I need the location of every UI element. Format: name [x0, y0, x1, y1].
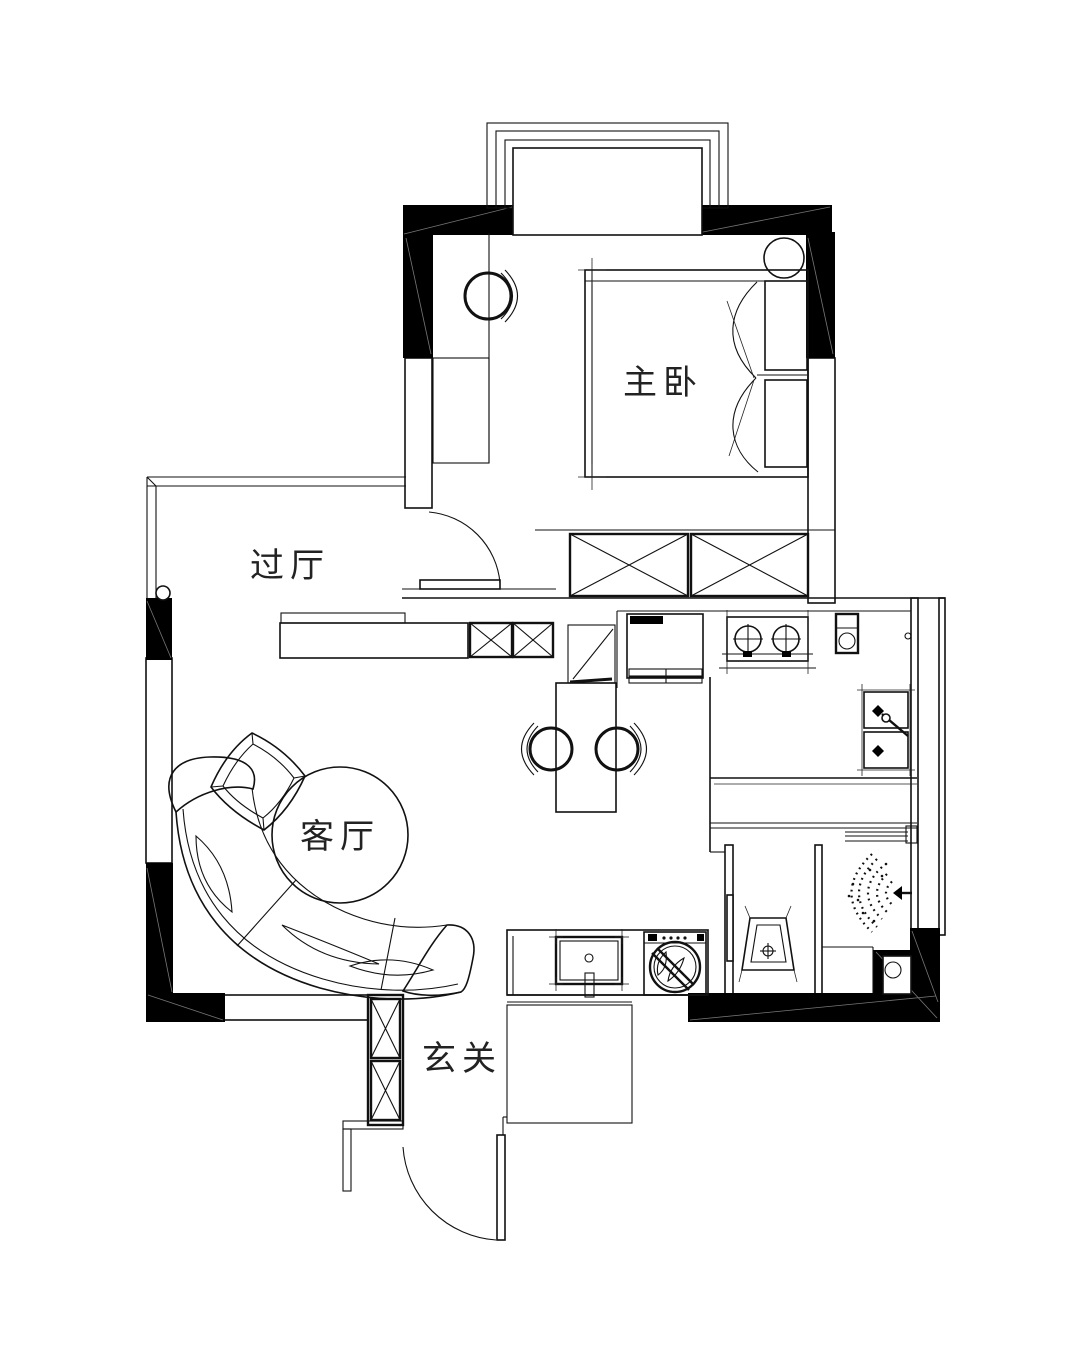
entry: 玄关	[343, 995, 632, 1240]
stool	[465, 270, 518, 322]
bedroom-door	[420, 512, 500, 589]
shower	[848, 854, 912, 932]
pillow	[765, 281, 807, 370]
walls-white	[146, 358, 945, 1020]
gas-valve	[905, 633, 911, 639]
tv-cabinet	[280, 613, 468, 658]
room-label-master-bedroom: 主卧	[623, 365, 703, 402]
kitchen-sink	[857, 684, 915, 776]
dining-chair-left	[522, 723, 573, 775]
wardrobe	[570, 534, 808, 596]
vanity-counter	[433, 233, 489, 463]
laundry	[507, 929, 708, 997]
entry-door	[403, 1135, 505, 1240]
refrigerator	[627, 614, 703, 683]
curved-sofa	[169, 757, 474, 999]
room-label-living-room: 客厅	[300, 818, 380, 856]
storage-boxes	[470, 623, 553, 657]
nightstand	[764, 238, 804, 278]
entry-walls	[343, 1005, 632, 1191]
living-room: 客厅	[169, 733, 474, 999]
sofa-pillow	[282, 925, 379, 964]
ottoman	[211, 733, 305, 830]
pillow	[765, 380, 807, 467]
quilt	[727, 282, 758, 472]
floor-drain	[883, 956, 911, 994]
water-heater	[836, 614, 858, 653]
room-label-hallway: 过厅	[250, 547, 330, 585]
toilet	[739, 906, 797, 982]
toilet-partition	[727, 895, 733, 961]
gas-stove	[719, 610, 816, 674]
dining-table	[556, 683, 616, 812]
wall-lamp-icon	[156, 586, 170, 600]
dining-chair-right	[596, 723, 647, 775]
folding-chair	[568, 625, 615, 683]
kitchen	[627, 610, 917, 843]
floor-plan-drawing: 主卧 过厅	[0, 0, 1080, 1350]
shoe-cabinet	[368, 995, 403, 1125]
floor-plan-page: 主卧 过厅	[0, 0, 1080, 1350]
bay-window	[487, 123, 728, 235]
room-label-entry: 玄关	[422, 1040, 502, 1078]
laundry-sink	[549, 929, 629, 997]
washing-machine	[644, 932, 706, 995]
master-bedroom: 主卧	[433, 233, 808, 490]
kitchen-counter	[710, 778, 917, 828]
